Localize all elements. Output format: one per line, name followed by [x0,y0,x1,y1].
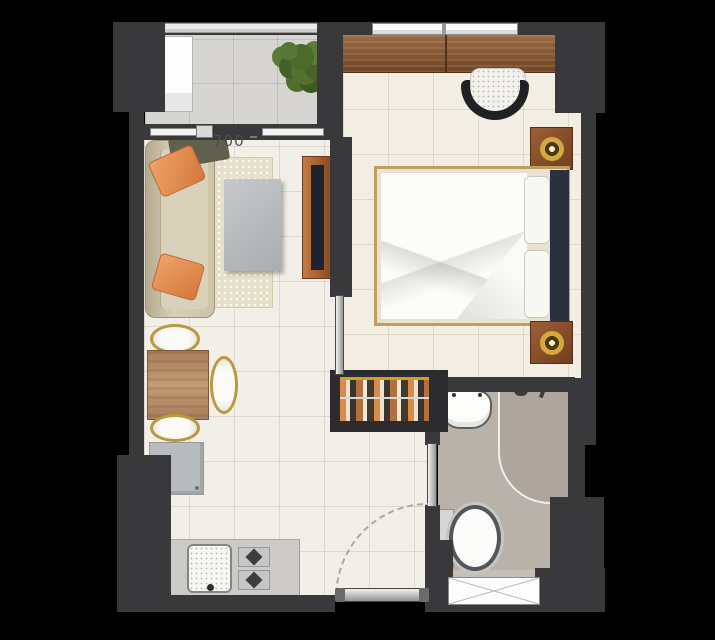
duvet-icon [381,173,527,319]
balcony-railing [163,23,318,33]
nightstand-icon [530,321,573,364]
window-divider [442,24,446,34]
pillar-top-right [555,28,605,113]
sliding-door-icon [150,128,202,136]
bathroom-door-icon [427,443,437,507]
kitchen-sink-icon [187,544,232,593]
dining-chair-icon [150,414,200,442]
closet-rail [340,397,429,399]
wardrobe-icon [343,35,555,73]
wall-left [129,100,144,460]
dimension-tick [250,136,257,138]
bedroom-window [372,23,518,35]
coffee-table-icon [224,179,281,271]
basin-tap [452,393,456,397]
burner-grate [246,572,263,589]
wall-bottom [117,595,335,612]
wall-balcony-divider [317,22,343,140]
duvet-fold [457,229,527,319]
sliding-door-handle [196,125,213,138]
basin-tap [478,393,482,397]
dining-table-icon [147,350,209,420]
wall-bathroom-top [428,377,575,392]
door-hinge [419,588,429,602]
wall-living-bedroom [330,137,352,297]
wall-bathroom-right [568,378,585,508]
door-hinge [335,588,345,602]
dimension-label: 700 [213,132,245,150]
pillar-bottom-left [117,455,171,612]
toilet-icon [449,505,501,571]
stove-burner-icon [238,570,270,590]
nightstand-icon [530,127,573,170]
tv-icon [311,165,324,270]
stove-burner-icon [238,547,270,567]
pillar-top-left [113,22,165,112]
cabinet-knob [195,486,199,490]
pillow-icon [524,250,550,318]
headboard-icon [550,170,569,322]
bathroom-window [448,577,540,605]
sliding-door-icon [262,128,324,136]
ac-unit-icon [163,36,193,112]
lamp-icon [540,331,564,355]
closet-clothes-icon [340,377,429,421]
burner-grate [246,549,263,566]
pillow-icon [524,176,550,244]
lamp-icon [540,137,564,161]
entrance-door-icon [336,588,428,602]
bedroom-door-hinge [333,283,345,294]
wall-bathroom-bottom-stub [438,577,448,612]
potted-plant-icon [280,42,298,60]
wardrobe-seam [445,35,447,73]
pillar-mid-right [550,497,604,612]
bedroom-door-icon [335,295,344,375]
faucet-icon [207,584,214,591]
stove-icon [236,546,272,592]
floor-plan-image: 700 [0,0,715,640]
dining-chair-icon [210,356,238,414]
